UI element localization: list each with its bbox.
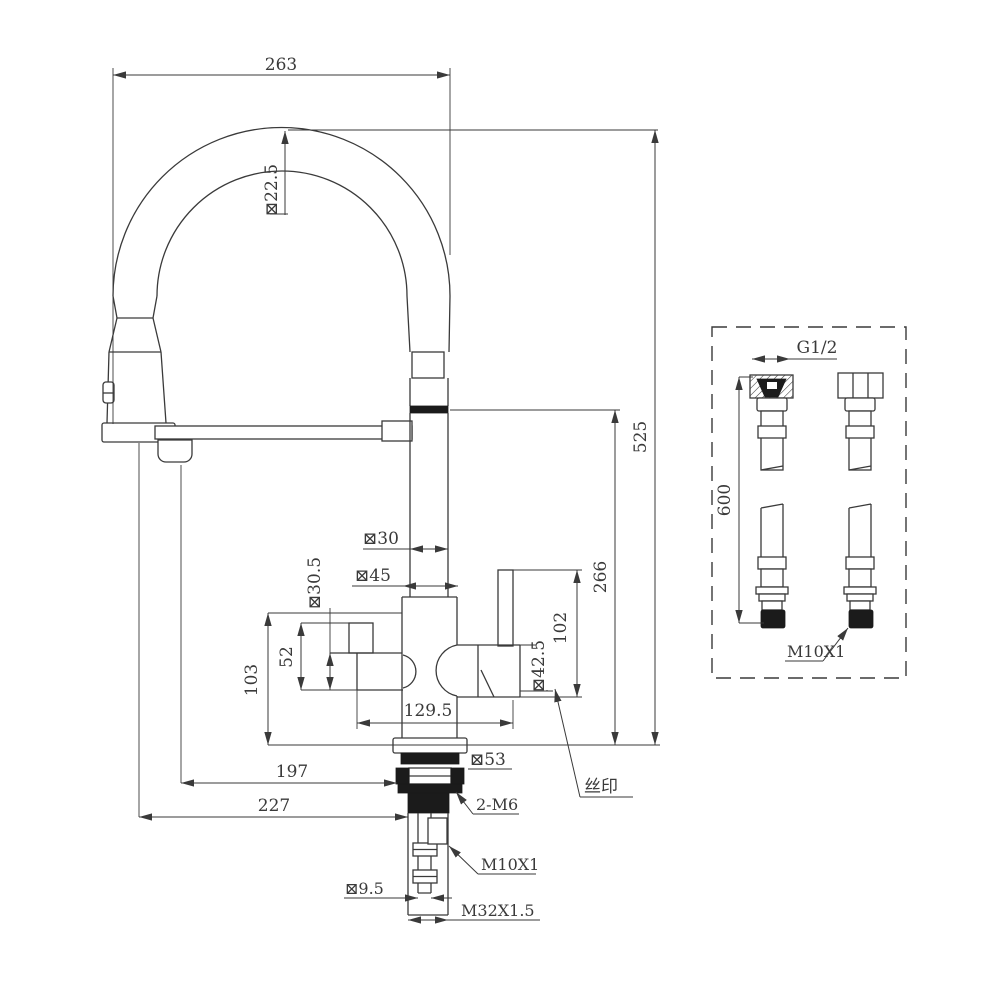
panel-nut-thread-label: G1/2	[797, 338, 838, 358]
inlet-thread-label: M10X1	[481, 855, 539, 874]
panel-dimensions	[739, 359, 848, 661]
drawing-canvas: 263 ⊠22.5 525 266 ⊠30 ⊠45 ⊠30.5 52 103 1…	[0, 0, 1000, 1000]
hose-fitting	[412, 352, 444, 378]
outlet-joint-arc	[403, 655, 416, 688]
faucet-technical-drawing: 263 ⊠22.5 525 266 ⊠30 ⊠45 ⊠30.5 52 103 1…	[0, 0, 1000, 1000]
dim-hose-dia-label: ⊠22.5	[262, 164, 282, 216]
riser-collar	[410, 406, 448, 413]
dim-outlet-dia-label: ⊠30.5	[305, 557, 325, 609]
silkscreen-label: 丝印	[584, 777, 618, 797]
base-block	[408, 793, 449, 813]
set-screws-label: 2-M6	[476, 795, 518, 814]
dim-body-dia-label: ⊠45	[355, 566, 391, 586]
supply-hose-left	[750, 375, 793, 628]
riser-pipe	[407, 296, 450, 597]
dim-spout-height-label: 266	[591, 561, 611, 593]
dock-nozzle	[158, 440, 192, 462]
dim-overall-height-label: 525	[631, 421, 651, 453]
base-gasket-lower	[398, 784, 462, 793]
panel-tip-thread-label: M10X1	[787, 642, 845, 661]
dock-bar	[155, 421, 412, 462]
threaded-shank	[408, 813, 448, 915]
dim-handle-height-label: 102	[551, 612, 571, 644]
dim-cartridge-dia-label: ⊠42.5	[529, 640, 549, 692]
dim-outlet-height-label: 52	[277, 646, 297, 668]
dim-body-height-label: 103	[242, 664, 262, 696]
handle-facet	[481, 670, 494, 697]
panel-hose-length-label: 600	[715, 484, 735, 516]
inlet-fitting	[428, 818, 447, 844]
accessory-panel	[712, 327, 906, 678]
dimension-lines	[113, 68, 660, 920]
dim-base-dia-label: ⊠53	[470, 750, 506, 770]
dim-spout-reach-label: 129.5	[404, 701, 453, 721]
hose-tip-right	[849, 610, 873, 628]
dim-nozzle-reach-label: 197	[276, 762, 308, 782]
base-mount	[393, 738, 467, 813]
dim-overall-reach-label: 227	[258, 796, 290, 816]
dock-bar-end	[382, 421, 412, 441]
handle-lever	[498, 570, 513, 646]
dim-overall-width-label: 263	[265, 55, 297, 75]
base-flange	[393, 738, 467, 753]
side-outlet-spout	[330, 623, 416, 690]
inlet-pipe-dia-label: ⊠9.5	[345, 879, 384, 898]
dim-riser-dia-label: ⊠30	[363, 529, 399, 549]
handle-assembly	[436, 570, 520, 697]
hose-hex-nut	[838, 373, 883, 398]
handle-joint-arc	[436, 645, 457, 696]
supply-hose-right	[838, 373, 883, 628]
base-gasket-upper	[401, 753, 459, 764]
shank-thread-label: M32X1.5	[461, 901, 535, 920]
hose-tip-left	[761, 610, 785, 628]
dimension-labels: 263 ⊠22.5 525 266 ⊠30 ⊠45 ⊠30.5 52 103 1…	[242, 55, 845, 920]
